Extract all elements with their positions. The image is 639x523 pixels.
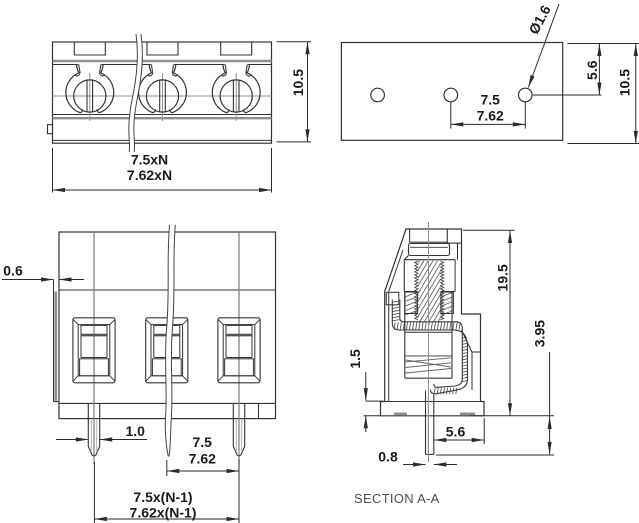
svg-text:SECTION A-A: SECTION A-A (354, 491, 440, 506)
svg-text:5.6: 5.6 (584, 60, 600, 80)
svg-text:3.95: 3.95 (531, 320, 547, 347)
svg-text:1.0: 1.0 (125, 423, 145, 439)
svg-text:7.62xN: 7.62xN (127, 167, 172, 183)
svg-text:7.5: 7.5 (192, 434, 212, 450)
svg-text:7.62: 7.62 (189, 450, 216, 466)
svg-text:7.5xN: 7.5xN (131, 152, 168, 168)
svg-text:10.5: 10.5 (290, 69, 306, 96)
svg-text:7.62: 7.62 (477, 107, 504, 123)
svg-text:5.6: 5.6 (446, 424, 466, 440)
svg-text:7.5x(N-1): 7.5x(N-1) (133, 489, 192, 505)
svg-text:7.5: 7.5 (480, 91, 500, 107)
svg-text:0.8: 0.8 (378, 449, 398, 465)
svg-text:10.5: 10.5 (617, 69, 633, 96)
svg-text:7.62x(N-1): 7.62x(N-1) (130, 505, 197, 521)
svg-text:0.6: 0.6 (3, 263, 23, 279)
svg-text:19.5: 19.5 (495, 264, 511, 291)
svg-text:1.5: 1.5 (347, 349, 363, 369)
